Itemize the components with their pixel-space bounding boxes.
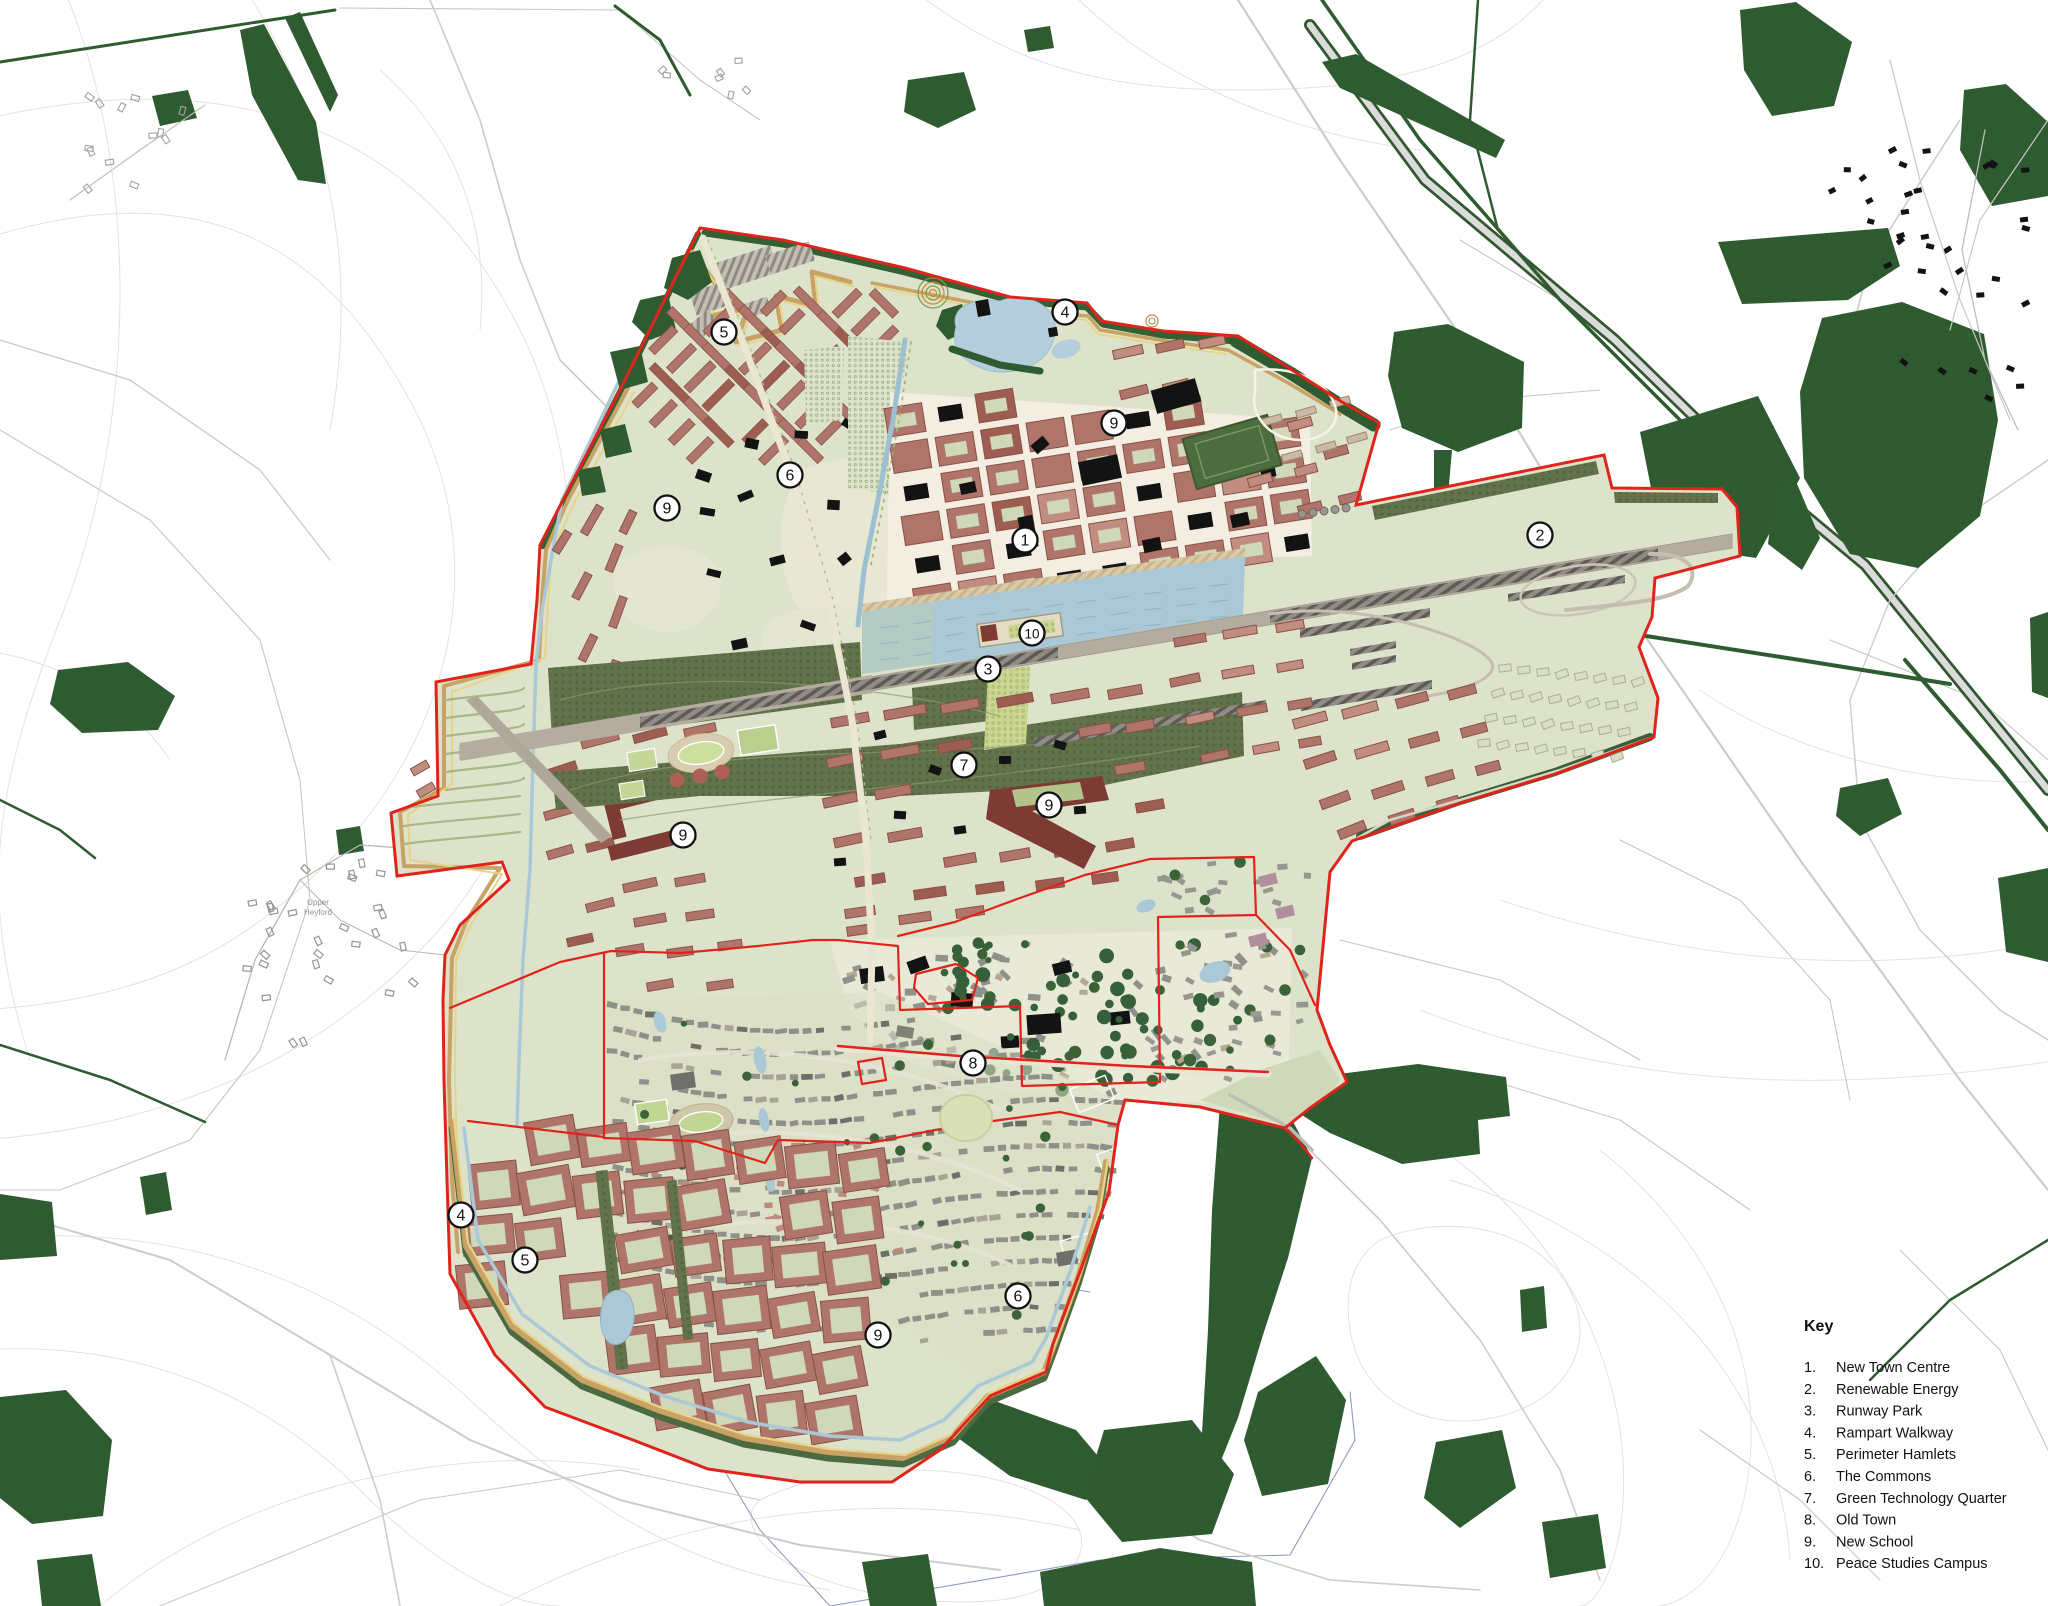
svg-text:New Town Centre: New Town Centre <box>1836 1360 1950 1376</box>
svg-text:Perimeter Hamlets: Perimeter Hamlets <box>1836 1447 1956 1463</box>
svg-text:Peace Studies Campus: Peace Studies Campus <box>1836 1556 1988 1572</box>
svg-text:5.: 5. <box>1804 1447 1816 1463</box>
svg-text:10.: 10. <box>1804 1556 1824 1572</box>
svg-text:2.: 2. <box>1804 1382 1816 1398</box>
svg-text:Heyford: Heyford <box>304 908 332 917</box>
svg-text:4.: 4. <box>1804 1425 1816 1441</box>
svg-text:9.: 9. <box>1804 1534 1816 1550</box>
svg-text:Rampart Walkway: Rampart Walkway <box>1836 1425 1954 1441</box>
svg-text:4: 4 <box>1061 305 1070 322</box>
svg-text:1: 1 <box>1021 533 1030 550</box>
svg-text:The Commons: The Commons <box>1836 1469 1931 1485</box>
svg-text:Renewable Energy: Renewable Energy <box>1836 1382 1959 1398</box>
svg-text:9: 9 <box>1110 416 1119 433</box>
svg-text:Upper: Upper <box>307 898 329 907</box>
svg-text:5: 5 <box>521 1253 530 1270</box>
svg-text:7.: 7. <box>1804 1491 1816 1507</box>
svg-text:3.: 3. <box>1804 1404 1816 1420</box>
svg-text:6.: 6. <box>1804 1469 1816 1485</box>
svg-text:9: 9 <box>1045 798 1054 815</box>
svg-text:Runway Park: Runway Park <box>1836 1404 1923 1420</box>
svg-text:6: 6 <box>1014 1289 1023 1306</box>
svg-text:10: 10 <box>1024 627 1039 642</box>
svg-text:Old Town: Old Town <box>1836 1513 1896 1529</box>
svg-text:4: 4 <box>457 1208 466 1225</box>
svg-text:2: 2 <box>1536 528 1545 545</box>
svg-text:New School: New School <box>1836 1534 1913 1550</box>
svg-text:8.: 8. <box>1804 1513 1816 1529</box>
svg-text:9: 9 <box>663 501 672 518</box>
svg-text:5: 5 <box>720 325 729 342</box>
svg-text:1.: 1. <box>1804 1360 1816 1376</box>
svg-text:Key: Key <box>1804 1318 1833 1335</box>
svg-text:9: 9 <box>679 828 688 845</box>
svg-text:3: 3 <box>984 662 993 679</box>
svg-text:6: 6 <box>786 468 795 485</box>
svg-text:9: 9 <box>874 1328 883 1345</box>
svg-text:8: 8 <box>969 1056 978 1073</box>
svg-text:7: 7 <box>960 758 969 775</box>
svg-text:Green Technology Quarter: Green Technology Quarter <box>1836 1491 2007 1507</box>
